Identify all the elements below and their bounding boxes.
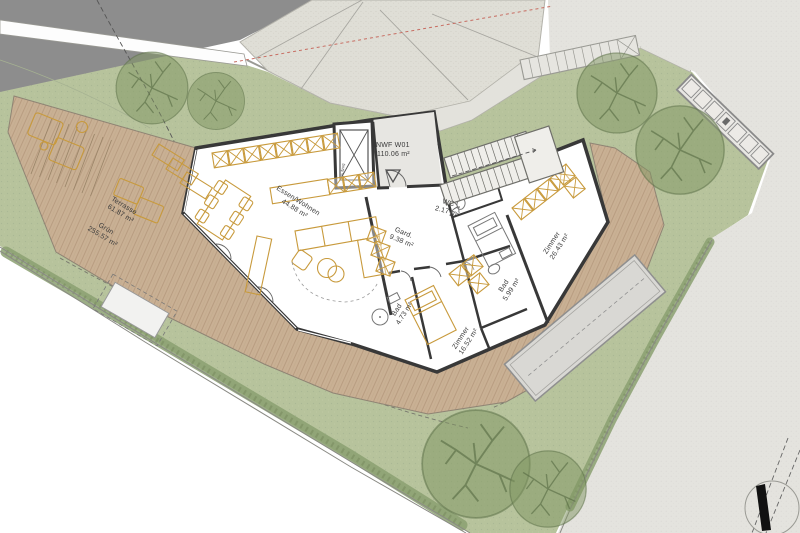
floor-plan-canvas: Aufzug	[0, 0, 800, 533]
site-plan-svg: Aufzug	[0, 0, 800, 533]
entrance-plaza	[372, 112, 442, 188]
tree-icon	[116, 52, 188, 124]
tree-icon	[187, 72, 244, 129]
tree-icon	[510, 451, 586, 527]
elevator-label: Aufzug	[340, 163, 346, 177]
tree-icon	[636, 106, 724, 194]
tree-icon	[577, 53, 657, 133]
